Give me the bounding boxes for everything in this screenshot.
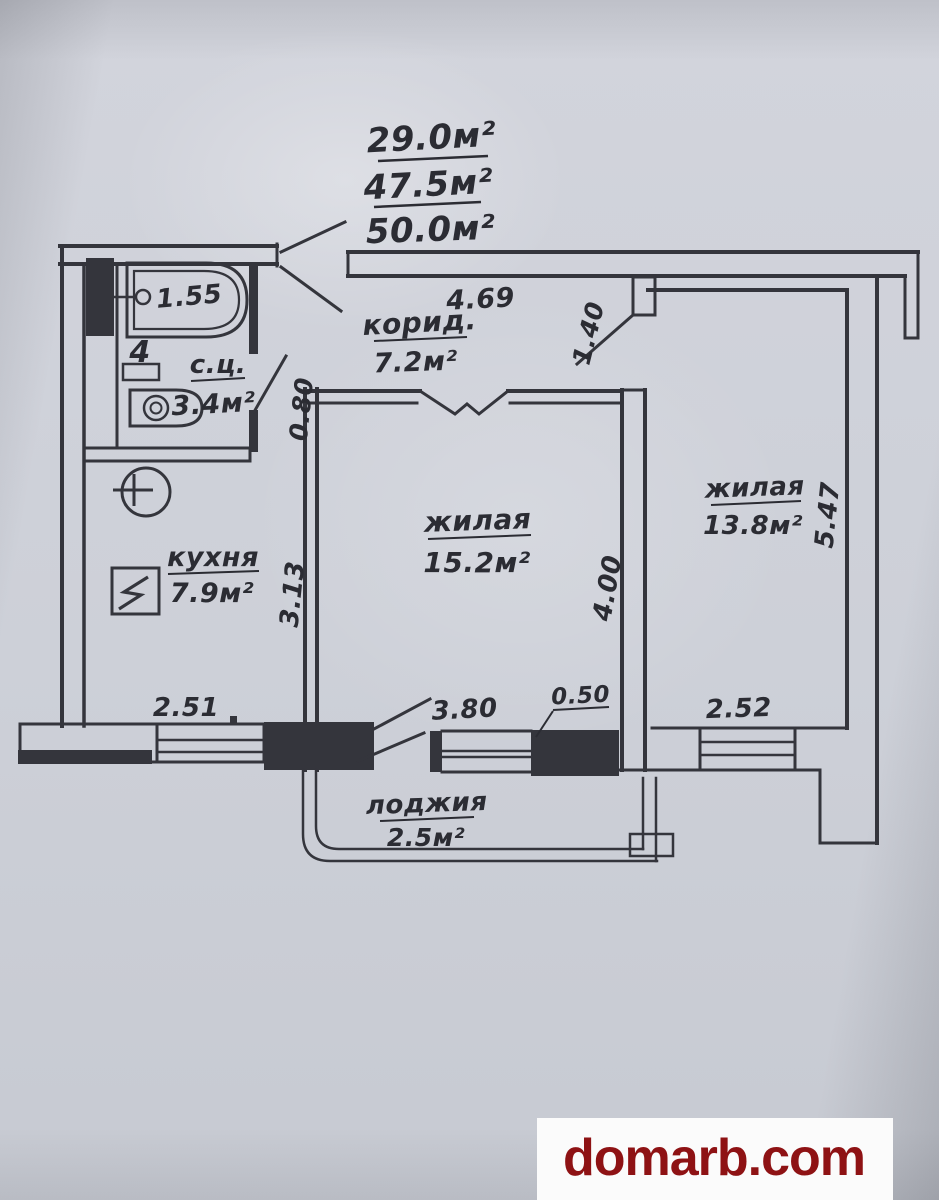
room-kitchen-label: кухня: [167, 542, 259, 573]
room-corridor-area: 7.2м²: [373, 346, 458, 380]
floor-plan-drawing: 29.0м² 47.5м² 50.0м² 4.69 корид. 7.2м² 1…: [0, 0, 939, 1200]
survey-dot: [230, 716, 237, 723]
stove-icon: [113, 468, 170, 516]
living1-window-icon: [442, 731, 531, 772]
dim-living2-window: 2.52: [705, 693, 772, 725]
dim-kitchen-width: 2.51: [153, 693, 219, 723]
entrance-door-icon: [281, 222, 345, 311]
living1-top-wall: [305, 391, 622, 414]
room-living2-area: 13.8м²: [703, 511, 803, 541]
room-corridor-label: корид.: [362, 303, 478, 342]
wall-pier: [86, 258, 114, 336]
room-partition-wall: [622, 390, 645, 770]
dim-living2-depth: 5.47: [810, 480, 847, 549]
kitchen-window-icon: [152, 740, 264, 762]
dim-living1-window: 3.80: [431, 693, 499, 726]
room-living1-area: 15.2м²: [423, 546, 530, 579]
dim-bath-width: 1.55: [155, 279, 224, 315]
dim-pier-width: 0.50: [551, 681, 611, 710]
right-outer-wall: [820, 276, 877, 843]
dim-bath-door: 0.80: [284, 376, 319, 442]
room-living1-label: жилая: [421, 502, 531, 539]
room-bathroom-area: 3.4м²: [171, 387, 257, 422]
door-jamb: [633, 277, 655, 315]
room-loggia-area: 2.5м²: [387, 823, 465, 852]
area-living-label: 29.0м²: [366, 115, 497, 162]
electric-panel-icon: [112, 568, 159, 614]
living2-window-icon: [700, 728, 847, 770]
watermark-badge: domarb.com: [537, 1118, 893, 1200]
room-kitchen-area: 7.9м²: [170, 578, 254, 609]
basin-mark: 4: [128, 335, 150, 370]
room-loggia-label: лоджия: [365, 787, 488, 821]
room-bathroom-label: с.ц.: [190, 350, 246, 380]
area-total-label: 50.0м²: [365, 208, 496, 252]
room-living2-label: жилая: [703, 471, 805, 505]
bathroom-door-leaf-icon: [254, 356, 286, 412]
watermark-text: domarb.com: [563, 1129, 865, 1187]
floor-plan-photo: 29.0м² 47.5м² 50.0м² 4.69 корид. 7.2м² 1…: [0, 0, 939, 1200]
faucet-icon: [114, 290, 150, 304]
dim-living2-door: 1.40: [567, 299, 611, 368]
